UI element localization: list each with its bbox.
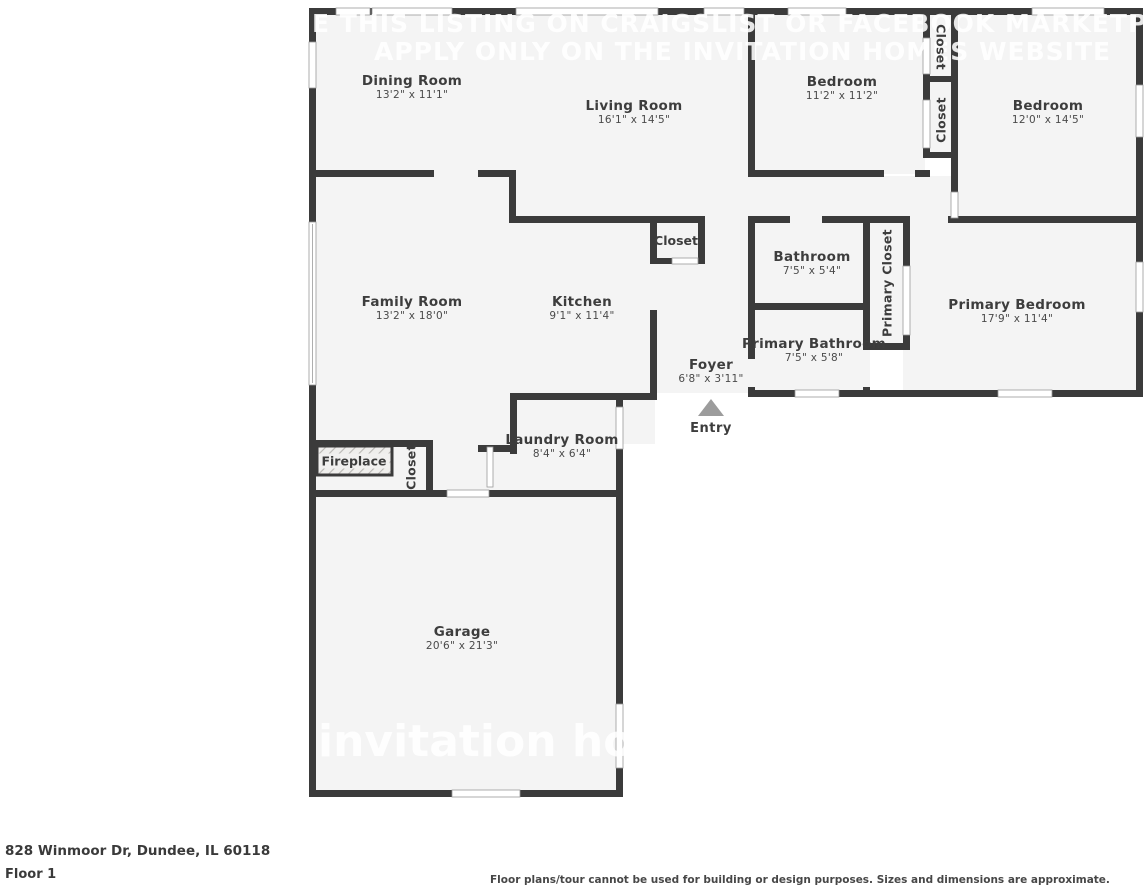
room-name: Bathroom — [773, 249, 850, 265]
room-dims: 12'0" x 14'5" — [1012, 114, 1084, 127]
room-label-family: Family Room 13'2" x 18'0" — [362, 294, 463, 323]
room-dims: 9'1" x 11'4" — [549, 310, 614, 323]
room-dims: 8'4" x 6'4" — [505, 448, 618, 461]
room-label-dining: Dining Room 13'2" x 11'1" — [362, 73, 462, 102]
room-name: Primary Bathroom — [742, 336, 886, 352]
floor-number-text: Floor 1 — [5, 867, 56, 882]
closet-label-2: Closet — [934, 97, 949, 143]
room-dims: 17'9" x 11'4" — [948, 313, 1085, 326]
room-name: Foyer — [678, 357, 743, 373]
watermark-line-2: APPLY ONLY ON THE INVITATION HOMES WEBSI… — [374, 37, 1111, 66]
room-label-living: Living Room 16'1" x 14'5" — [586, 98, 683, 127]
room-dims: 13'2" x 18'0" — [362, 310, 463, 323]
room-name: Garage — [426, 624, 498, 640]
room-name: Dining Room — [362, 73, 462, 89]
room-dims: 16'1" x 14'5" — [586, 114, 683, 127]
room-dims: 20'6" x 21'3" — [426, 640, 498, 653]
room-label-kitchen: Kitchen 9'1" x 11'4" — [549, 294, 614, 323]
room-dims: 7'5" x 5'8" — [742, 352, 886, 365]
closet-label-1: Closet — [934, 24, 949, 70]
room-dims: 11'2" x 11'2" — [806, 90, 878, 103]
room-name: Bedroom — [1012, 98, 1084, 114]
address-text: 828 Winmoor Dr, Dundee, IL 60118 — [5, 843, 270, 859]
room-name: Family Room — [362, 294, 463, 310]
room-dims: 6'8" x 3'11" — [678, 373, 743, 386]
room-label-bedroom-2: Bedroom 12'0" x 14'5" — [1012, 98, 1084, 127]
room-name: Bedroom — [806, 74, 878, 90]
floor-plan-page: E THIS LISTING ON CRAIGSLIST OR FACEBOOK… — [0, 0, 1144, 889]
room-label-garage: Garage 20'6" x 21'3" — [426, 624, 498, 653]
disclaimer-text: Floor plans/tour cannot be used for buil… — [490, 874, 1110, 886]
room-label-foyer: Foyer 6'8" x 3'11" — [678, 357, 743, 386]
room-name: Laundry Room — [505, 432, 618, 448]
floors — [312, 12, 1136, 793]
room-name: Primary Bedroom — [948, 297, 1085, 313]
closet-label-fireplace: Closet — [404, 444, 419, 490]
room-dims: 7'5" x 5'4" — [773, 265, 850, 278]
entry-label: Entry — [690, 421, 732, 436]
room-dims: 13'2" x 11'1" — [362, 89, 462, 102]
entry-arrow-icon — [698, 399, 724, 416]
room-label-laundry: Laundry Room 8'4" x 6'4" — [505, 432, 618, 461]
room-label-primary-bathroom: Primary Bathroom 7'5" x 5'8" — [742, 336, 886, 365]
closet-label-hall: Closet — [654, 233, 698, 248]
room-label-bathroom: Bathroom 7'5" x 5'4" — [773, 249, 850, 278]
room-label-bedroom-1: Bedroom 11'2" x 11'2" — [806, 74, 878, 103]
room-name: Living Room — [586, 98, 683, 114]
room-label-primary-bedroom: Primary Bedroom 17'9" x 11'4" — [948, 297, 1085, 326]
fireplace-label: Fireplace — [318, 454, 389, 469]
watermark-line-1: E THIS LISTING ON CRAIGSLIST OR FACEBOOK… — [312, 9, 1144, 38]
primary-closet-label: Primary Closet — [880, 229, 895, 337]
watermark-logo: invitation hom — [318, 716, 679, 767]
room-name: Kitchen — [549, 294, 614, 310]
